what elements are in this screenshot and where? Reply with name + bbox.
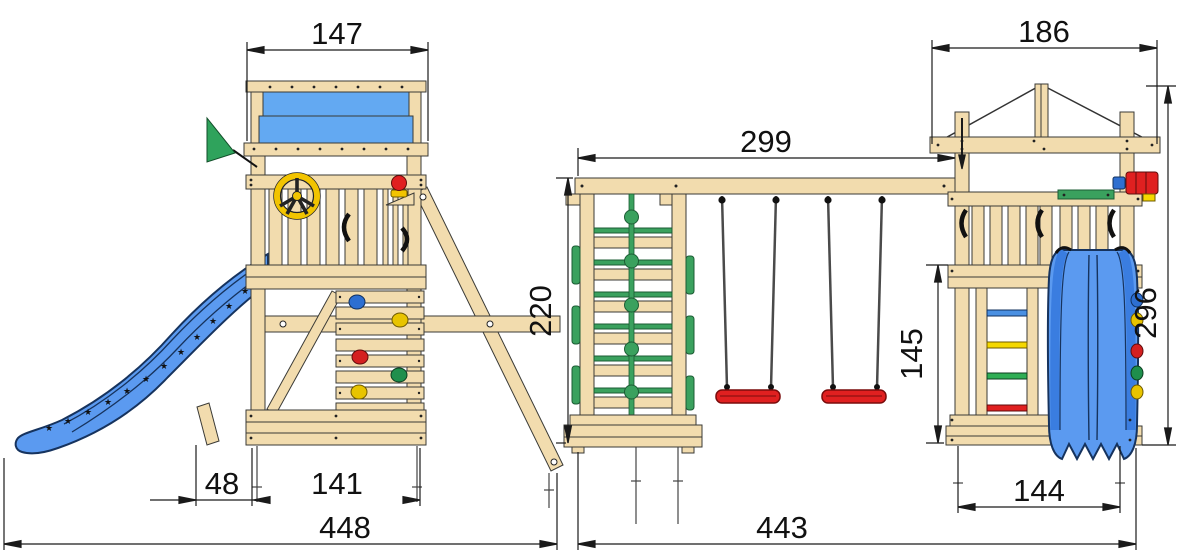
frame-post: [672, 194, 686, 415]
svg-text:★: ★: [225, 301, 233, 311]
dim-220: [556, 178, 573, 443]
slide-front-icon: [1048, 248, 1138, 459]
climbing-hold: [352, 350, 368, 364]
svg-text:★: ★: [64, 416, 72, 426]
climbing-hold: [392, 313, 408, 327]
left-tower: ★★★ ★★★ ★★★ ★★★: [16, 81, 563, 471]
ladder-rung: [987, 342, 1027, 348]
svg-text:★: ★: [160, 361, 168, 371]
roof-beam: [930, 137, 1160, 153]
dim-label-186: 186: [1018, 14, 1070, 49]
svg-text:★: ★: [193, 332, 201, 342]
dim-label-443: 443: [756, 510, 808, 545]
climbing-rope: [625, 194, 639, 415]
tarp-lower: [259, 116, 413, 143]
dim-label-145: 145: [894, 328, 929, 380]
deck-board: [246, 265, 426, 277]
slide-support-foot: [197, 403, 219, 445]
playset-dimension-drawing: ★★★ ★★★ ★★★ ★★★: [0, 0, 1181, 558]
climbing-hold: [351, 385, 367, 399]
dim-label-48: 48: [205, 466, 239, 501]
ladder-rung: [987, 310, 1027, 316]
dim-label-448: 448: [319, 510, 371, 545]
svg-text:★: ★: [84, 407, 92, 417]
dim-label-296: 296: [1128, 287, 1163, 339]
slide-side-icon: ★★★ ★★★ ★★★ ★★★: [16, 254, 268, 453]
ground-anchors: [252, 446, 1125, 524]
swing-beam: [575, 178, 955, 194]
dim-label-147: 147: [311, 16, 363, 51]
svg-text:★: ★: [177, 347, 185, 357]
right-tower: [930, 84, 1160, 459]
dim-label-299: 299: [740, 124, 792, 159]
climbing-hold: [391, 368, 407, 382]
tarp-upper: [263, 92, 409, 116]
frame-post: [580, 194, 594, 415]
swing-set: [716, 196, 886, 403]
deck-board: [246, 277, 426, 289]
svg-text:★: ★: [123, 386, 131, 396]
dim-label-144: 144: [1013, 473, 1065, 508]
diagonal-brace: [267, 291, 341, 414]
climbing-frame-swing-module: [564, 178, 955, 453]
ladder-rung: [987, 373, 1027, 379]
dim-448: [4, 458, 557, 550]
climbing-hold: [349, 295, 365, 309]
dim-label-220: 220: [523, 285, 558, 337]
svg-text:★: ★: [45, 423, 53, 433]
svg-text:★: ★: [104, 397, 112, 407]
dim-145: [926, 265, 948, 443]
svg-text:★: ★: [142, 374, 150, 384]
grab-handle-icon: [1110, 210, 1115, 237]
eave-beam: [244, 143, 428, 156]
ladder-rung: [987, 405, 1027, 411]
dim-label-141: 141: [311, 466, 363, 501]
steering-wheel-icon: [274, 173, 320, 219]
monkey-bar: [1058, 190, 1114, 199]
svg-text:★: ★: [209, 316, 217, 326]
